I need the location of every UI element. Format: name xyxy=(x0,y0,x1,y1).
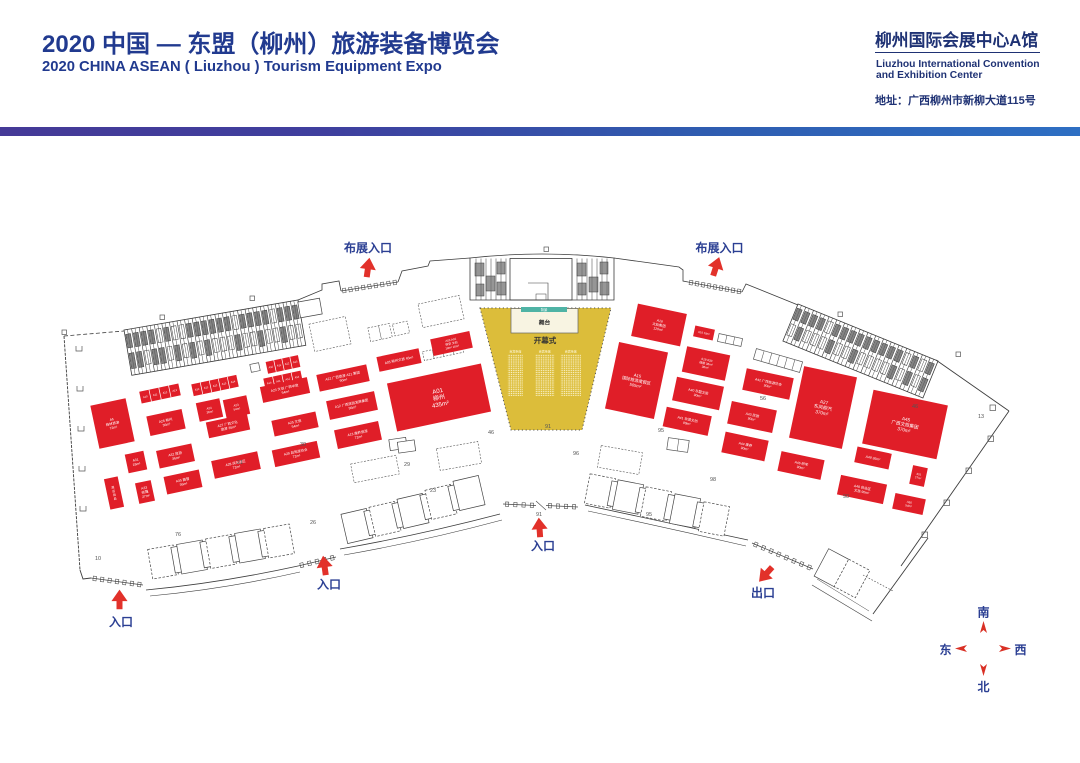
svg-text:嘉宾坐席: 嘉宾坐席 xyxy=(539,349,551,354)
svg-text:26: 26 xyxy=(310,520,316,526)
svg-text:西: 西 xyxy=(1014,643,1026,657)
svg-text:背景: 背景 xyxy=(541,307,548,312)
svg-text:21: 21 xyxy=(237,460,243,466)
svg-text:96: 96 xyxy=(573,451,579,457)
svg-text:90: 90 xyxy=(843,494,849,500)
svg-text:98: 98 xyxy=(710,477,716,483)
svg-text:56: 56 xyxy=(760,396,766,402)
svg-text:东: 东 xyxy=(939,642,951,657)
svg-text:13: 13 xyxy=(978,414,984,420)
svg-text:95: 95 xyxy=(646,512,652,518)
svg-text:入口: 入口 xyxy=(317,578,341,592)
svg-text:南: 南 xyxy=(977,605,989,620)
svg-text:嘉宾坐席: 嘉宾坐席 xyxy=(509,349,521,354)
svg-text:布展入口: 布展入口 xyxy=(695,240,743,255)
svg-text:30: 30 xyxy=(300,442,306,448)
svg-text:开幕式: 开幕式 xyxy=(534,335,557,345)
svg-text:舞台: 舞台 xyxy=(539,319,551,327)
svg-text:入口: 入口 xyxy=(109,615,133,629)
svg-text:嘉宾坐席: 嘉宾坐席 xyxy=(565,349,577,354)
svg-text:95: 95 xyxy=(658,428,664,434)
svg-text:91: 91 xyxy=(545,424,551,430)
svg-text:91: 91 xyxy=(536,512,542,518)
svg-text:10: 10 xyxy=(95,556,101,562)
svg-text:北: 北 xyxy=(977,679,989,694)
svg-text:29: 29 xyxy=(404,462,410,468)
svg-text:入口: 入口 xyxy=(531,539,555,553)
svg-text:46: 46 xyxy=(488,430,494,436)
svg-text:布展入口: 布展入口 xyxy=(344,240,392,255)
svg-text:76: 76 xyxy=(175,532,181,538)
svg-text:出口: 出口 xyxy=(751,585,775,600)
svg-text:23: 23 xyxy=(430,488,436,494)
svg-text:46: 46 xyxy=(912,404,918,410)
